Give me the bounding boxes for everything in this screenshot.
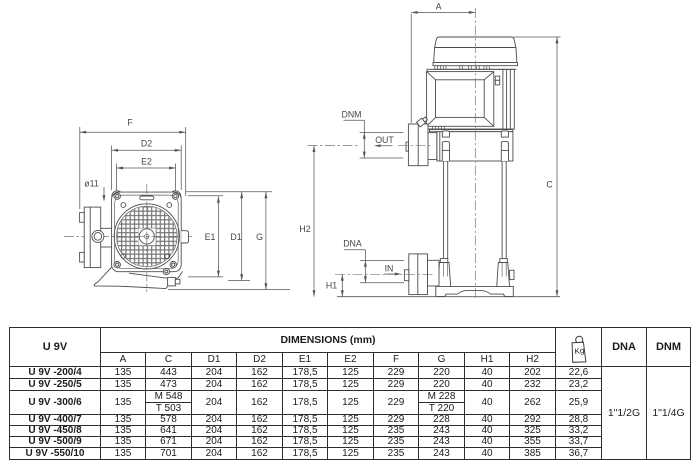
svg-text:C: C [546,180,553,190]
svg-text:IN: IN [385,264,394,274]
svg-text:ø11: ø11 [84,179,99,189]
svg-text:H1: H1 [326,281,337,291]
svg-text:E1: E1 [205,232,216,242]
svg-text:G: G [256,232,263,242]
svg-text:H2: H2 [299,224,310,234]
svg-text:A: A [436,2,442,12]
svg-text:DNM: DNM [341,109,361,119]
svg-text:E2: E2 [141,157,152,167]
svg-text:D2: D2 [141,139,152,149]
svg-text:Kg: Kg [573,346,584,356]
svg-text:D1: D1 [230,232,241,242]
svg-text:DNA: DNA [343,239,362,249]
svg-text:F: F [127,118,133,128]
svg-text:OUT: OUT [375,135,394,145]
